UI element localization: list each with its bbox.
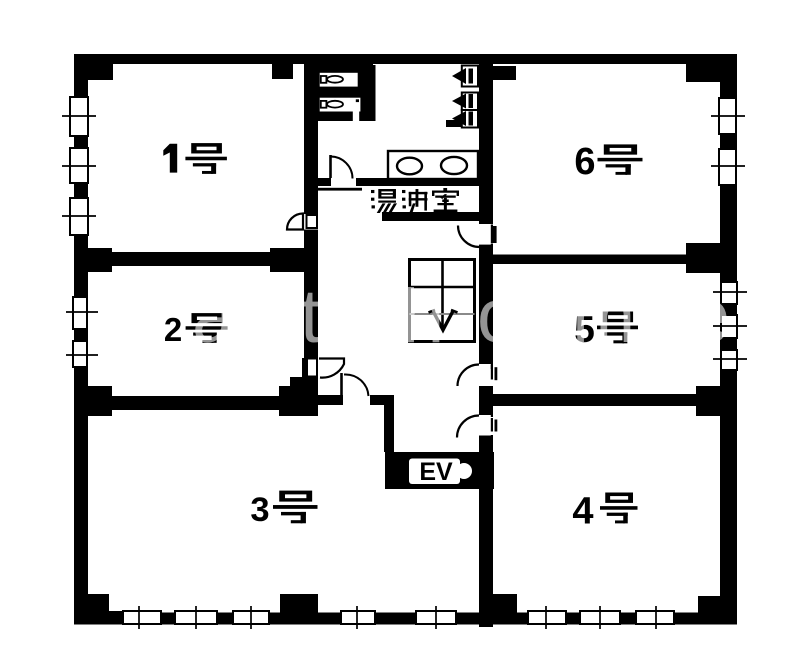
svg-text:4: 4 (572, 491, 593, 533)
svg-text:e: e (688, 274, 730, 359)
svg-text:3: 3 (250, 491, 269, 529)
svg-text:6: 6 (574, 141, 595, 183)
svg-text:t: t (300, 274, 321, 359)
svg-text:2: 2 (164, 311, 182, 348)
svg-text:o: o (477, 274, 519, 359)
svg-text:EV: EV (419, 458, 453, 486)
svg-text:a: a (192, 274, 235, 359)
svg-text:h: h (402, 274, 444, 359)
svg-text:m: m (572, 274, 635, 359)
